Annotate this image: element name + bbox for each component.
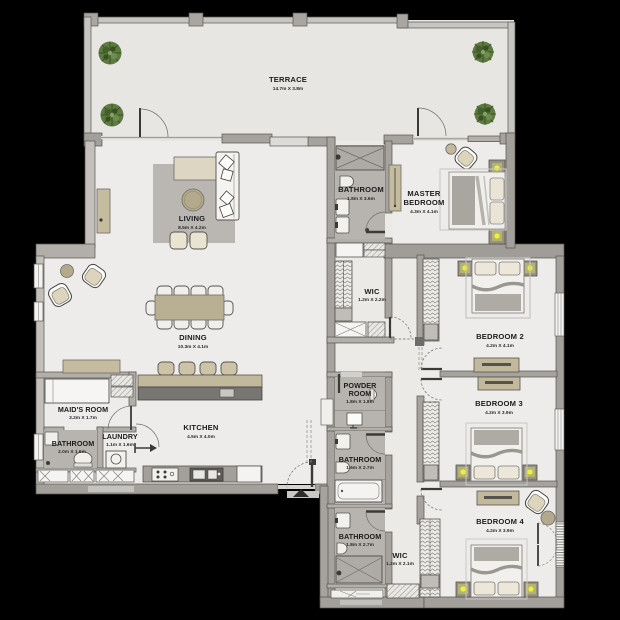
svg-text:1.6m X 2.7m: 1.6m X 2.7m — [346, 465, 374, 471]
svg-text:BATHROOM: BATHROOM — [52, 439, 95, 448]
svg-text:BEDROOM 2: BEDROOM 2 — [476, 332, 524, 341]
svg-text:1.8m X 1.8m: 1.8m X 1.8m — [346, 399, 374, 405]
svg-text:4.2m X 3.9m: 4.2m X 3.9m — [485, 410, 513, 416]
svg-text:WIC: WIC — [364, 287, 380, 296]
svg-text:MASTER: MASTER — [407, 189, 441, 198]
svg-text:WIC: WIC — [392, 551, 408, 560]
svg-text:14.7m X 3.8m: 14.7m X 3.8m — [273, 86, 303, 92]
svg-text:LAUNDRY: LAUNDRY — [102, 432, 138, 441]
svg-text:BEDROOM: BEDROOM — [403, 198, 444, 207]
svg-text:1.8m X 2.7m: 1.8m X 2.7m — [346, 542, 374, 548]
svg-text:MAID'S ROOM: MAID'S ROOM — [58, 405, 108, 414]
svg-text:BATHROOM: BATHROOM — [339, 532, 382, 541]
svg-text:DINING: DINING — [179, 333, 207, 342]
svg-text:BEDROOM 4: BEDROOM 4 — [476, 517, 524, 526]
svg-text:KITCHEN: KITCHEN — [183, 423, 218, 432]
svg-text:4.3m X 4.1m: 4.3m X 4.1m — [410, 209, 438, 215]
svg-text:TERRACE: TERRACE — [269, 75, 307, 84]
svg-text:BEDROOM 3: BEDROOM 3 — [475, 399, 523, 408]
svg-text:BATHROOM: BATHROOM — [338, 185, 384, 194]
svg-text:1.2m X 2.1m: 1.2m X 2.1m — [386, 561, 414, 567]
svg-text:2.0m X 1.6m: 2.0m X 1.6m — [58, 449, 86, 455]
svg-text:3.2m X 1.7m: 3.2m X 1.7m — [69, 415, 97, 421]
svg-text:4.2m X 4.1m: 4.2m X 4.1m — [486, 343, 514, 349]
svg-text:10.3m X 4.1m: 10.3m X 4.1m — [178, 344, 208, 350]
svg-text:BATHROOM: BATHROOM — [339, 455, 382, 464]
svg-text:8.5m X 4.2m: 8.5m X 4.2m — [178, 225, 206, 231]
svg-text:1.1m X 1.6m: 1.1m X 1.6m — [106, 442, 134, 448]
svg-text:1.2m X 2.2m: 1.2m X 2.2m — [358, 297, 386, 303]
svg-text:4.2m X 3.9m: 4.2m X 3.9m — [486, 528, 514, 534]
svg-text:4.5m X 4.0m: 4.5m X 4.0m — [187, 434, 215, 440]
svg-text:1.8m X 3.6m: 1.8m X 3.6m — [347, 196, 375, 202]
svg-text:LIVING: LIVING — [179, 214, 206, 223]
svg-text:ROOM: ROOM — [349, 389, 372, 398]
